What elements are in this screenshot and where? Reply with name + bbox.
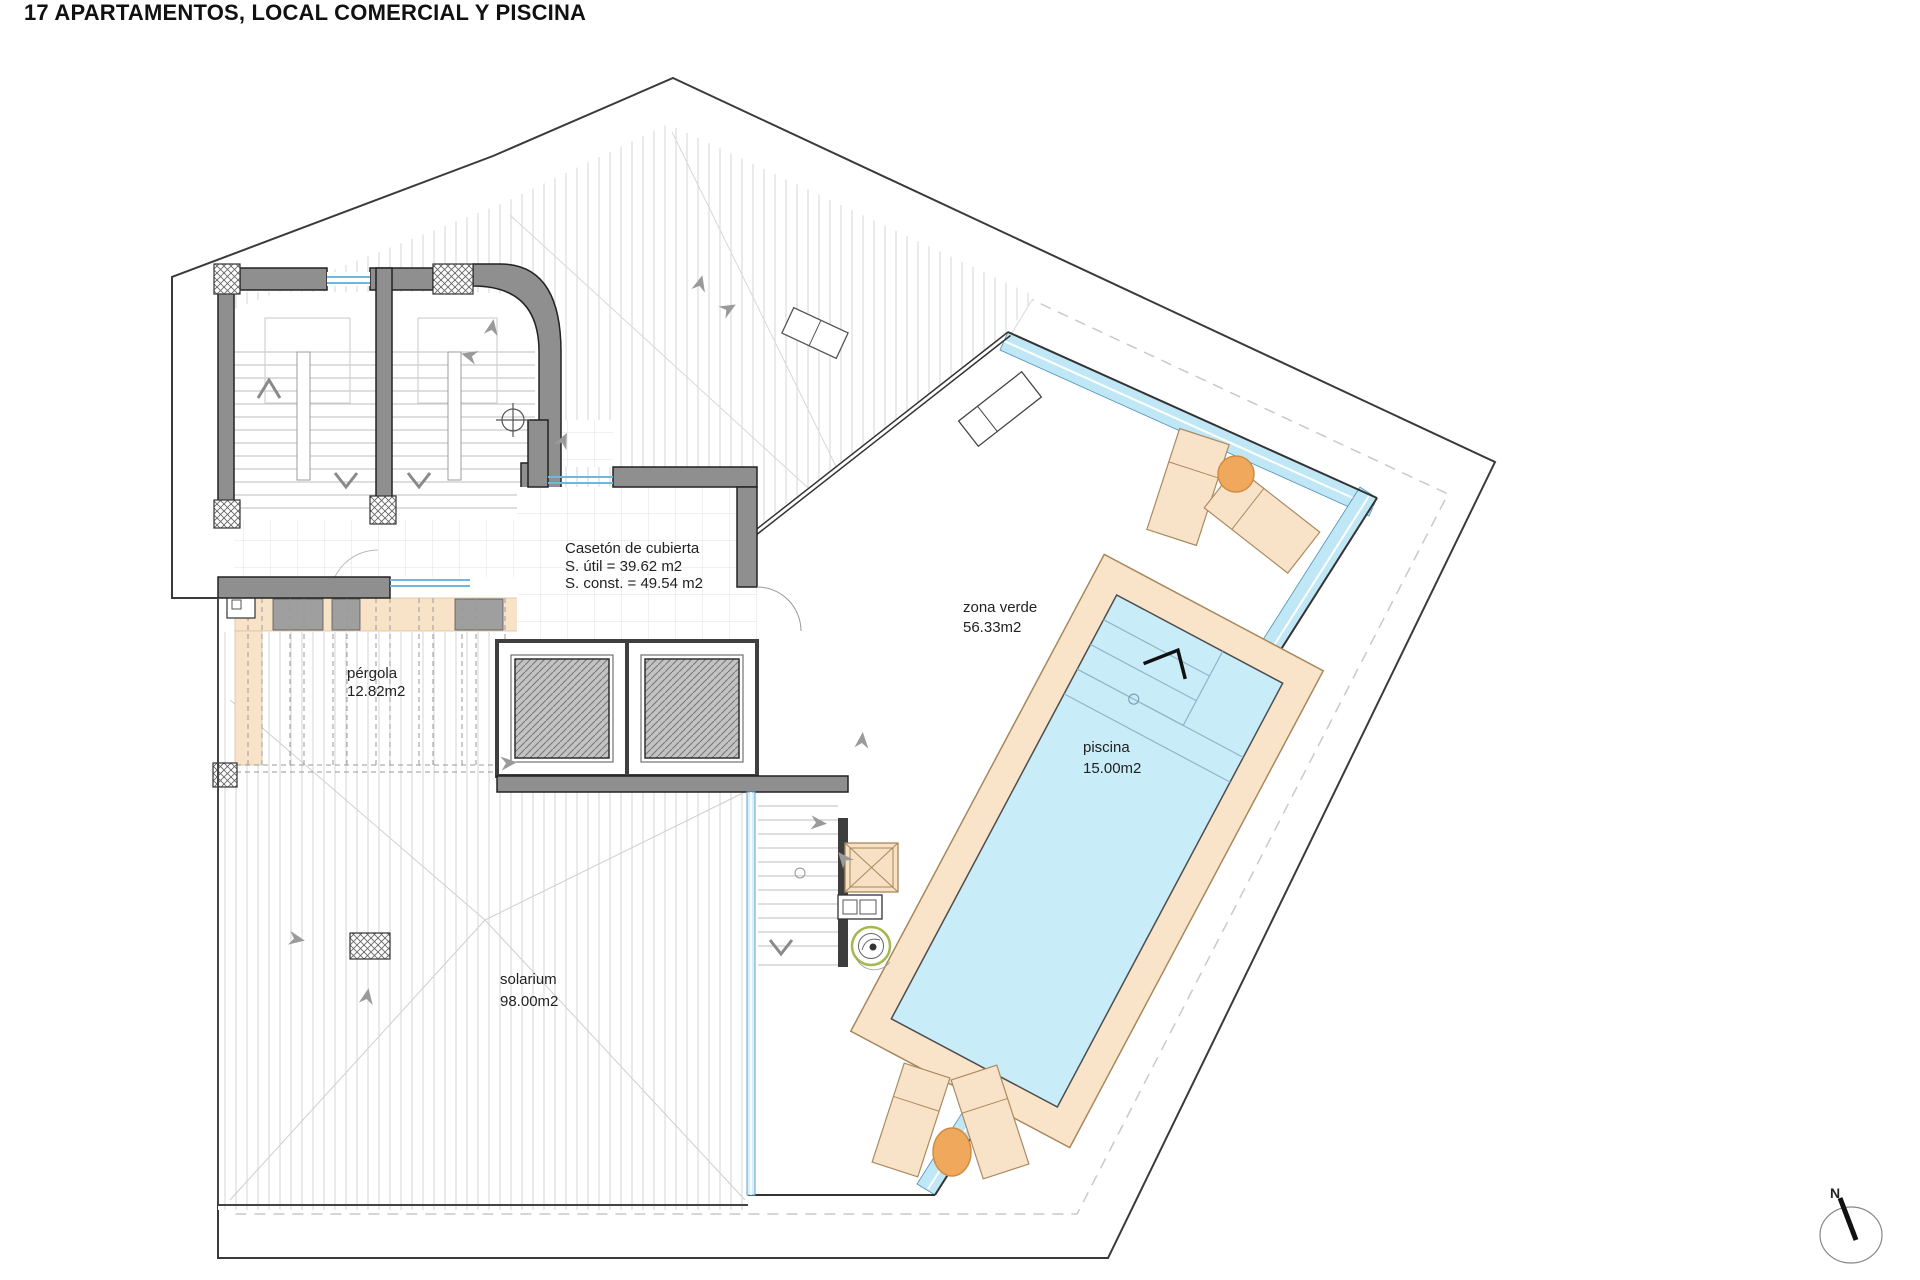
- glass-screen-vertical: [747, 792, 755, 1195]
- caseton-name: Casetón de cubierta: [565, 540, 700, 557]
- zona-verde-name: zona verde: [963, 599, 1037, 616]
- side-table: [1218, 456, 1254, 492]
- zona-verde-area: 56.33m2: [963, 619, 1021, 636]
- caseton-area-const: S. const. = 49.54 m2: [565, 575, 703, 592]
- pergola-name: pérgola: [347, 665, 398, 682]
- piscina-area: 15.00m2: [1083, 760, 1141, 777]
- stair-stringer: [448, 352, 461, 480]
- north-label: N: [1830, 1185, 1840, 1201]
- stair-stringer: [297, 352, 310, 480]
- solarium-name: solarium: [500, 971, 557, 988]
- solarium-area: 98.00m2: [500, 993, 558, 1010]
- caseton-area-util: S. útil = 39.62 m2: [565, 558, 682, 575]
- drawing-sheet: 17 APARTAMENTOS, LOCAL COMERCIAL Y PISCI…: [0, 0, 1920, 1280]
- tile-floor-lower-landing: [234, 520, 534, 577]
- service-south-wall: [497, 776, 848, 792]
- pergola-label: pérgola 12.82m2: [347, 665, 405, 700]
- north-needle: [1840, 1198, 1856, 1240]
- north-indicator: N: [1820, 1185, 1882, 1263]
- piscina-name: piscina: [1083, 739, 1130, 756]
- pergola-area: 12.82m2: [347, 683, 405, 700]
- side-table: [933, 1128, 971, 1176]
- floor-plan: Casetón de cubierta S. útil = 39.62 m2 S…: [0, 0, 1920, 1280]
- ac-unit-grille: [645, 659, 739, 758]
- ac-unit-grille: [515, 659, 609, 758]
